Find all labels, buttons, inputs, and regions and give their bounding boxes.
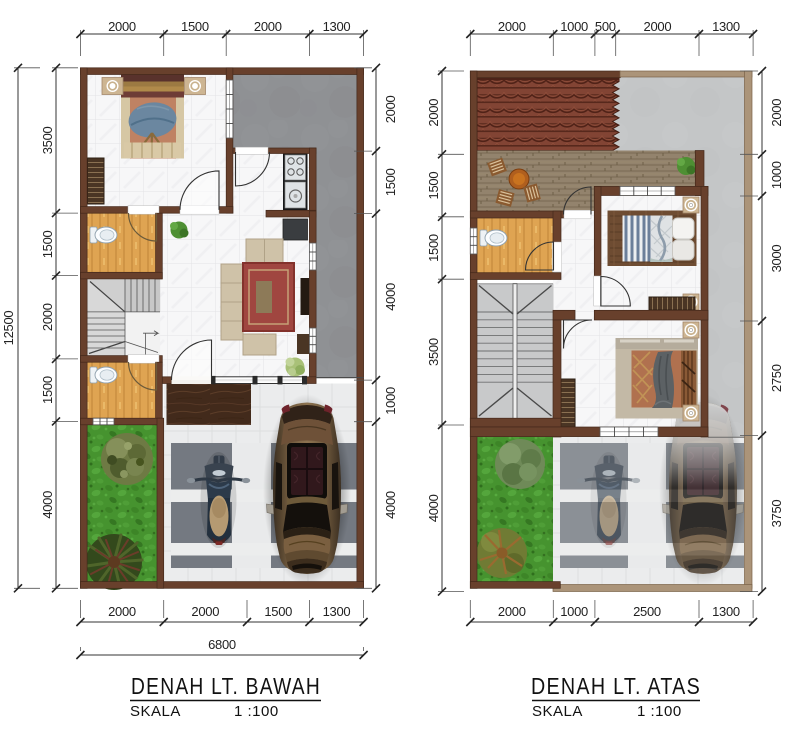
svg-text:DENAH LT. BAWAH: DENAH LT. BAWAH [131,673,321,699]
svg-text:2000: 2000 [769,99,784,127]
svg-text:1500: 1500 [383,168,398,196]
svg-text:1 :100: 1 :100 [234,703,279,720]
svg-text:2000: 2000 [498,19,526,34]
svg-text:3500: 3500 [40,126,55,154]
svg-text:2000: 2000 [383,95,398,123]
svg-text:3750: 3750 [769,500,784,528]
svg-text:4000: 4000 [383,491,398,519]
svg-text:1500: 1500 [40,230,55,258]
svg-text:500: 500 [595,19,616,34]
svg-text:6800: 6800 [208,637,236,652]
svg-text:3000: 3000 [769,245,784,273]
svg-text:1500: 1500 [426,172,441,200]
svg-text:1500: 1500 [426,234,441,262]
svg-text:DENAH LT. ATAS: DENAH LT. ATAS [531,673,701,699]
svg-text:1000: 1000 [769,161,784,189]
svg-text:1300: 1300 [323,604,351,619]
svg-text:2000: 2000 [40,303,55,331]
svg-text:1500: 1500 [181,19,209,34]
svg-text:3500: 3500 [426,338,441,366]
svg-text:2500: 2500 [633,604,661,619]
svg-text:SKALA: SKALA [532,703,583,720]
svg-text:1300: 1300 [712,19,740,34]
svg-text:2000: 2000 [254,19,282,34]
svg-text:1000: 1000 [560,19,588,34]
svg-text:1 :100: 1 :100 [637,703,682,720]
svg-text:2000: 2000 [644,19,672,34]
svg-text:4000: 4000 [40,491,55,519]
svg-text:4000: 4000 [426,494,441,522]
svg-text:2000: 2000 [191,604,219,619]
svg-text:4000: 4000 [383,283,398,311]
svg-text:2750: 2750 [769,364,784,392]
svg-text:1500: 1500 [264,604,292,619]
svg-text:SKALA: SKALA [130,703,181,720]
svg-text:1500: 1500 [40,376,55,404]
svg-text:2000: 2000 [108,604,136,619]
svg-text:2000: 2000 [108,19,136,34]
svg-text:2000: 2000 [426,99,441,127]
svg-text:1300: 1300 [323,19,351,34]
svg-text:1000: 1000 [383,387,398,415]
svg-text:1000: 1000 [560,604,588,619]
svg-text:12500: 12500 [1,311,16,346]
svg-text:2000: 2000 [498,604,526,619]
svg-text:1300: 1300 [712,604,740,619]
